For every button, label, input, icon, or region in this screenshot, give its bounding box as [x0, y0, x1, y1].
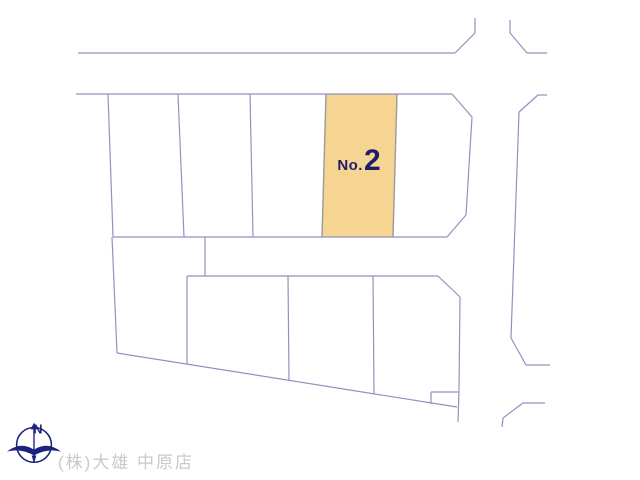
- boundary-line: [510, 33, 527, 53]
- parcel-label-number: 2: [364, 146, 381, 176]
- boundary-line: [438, 276, 460, 297]
- boundary-line: [459, 297, 460, 390]
- boundary-line: [455, 33, 475, 53]
- boundary-line: [466, 117, 472, 215]
- boundary-line: [108, 94, 113, 237]
- boundary-line: [519, 95, 538, 112]
- boundary-line: [511, 338, 526, 365]
- parcel-label-prefix: No.: [337, 157, 363, 174]
- boundary-line: [250, 94, 253, 237]
- boundary-line: [288, 276, 289, 380]
- boundary-line: [458, 390, 459, 422]
- parcel-map-drawing: [0, 0, 640, 480]
- compass-north-icon: N: [5, 412, 63, 470]
- boundary-line: [511, 112, 519, 338]
- plot-map-image: No. 2 N (株)大雄 中原店: [0, 0, 640, 480]
- boundary-line: [503, 403, 523, 418]
- boundary-line: [447, 215, 466, 237]
- boundary-line: [117, 353, 457, 407]
- parcel-number-label: No. 2: [322, 146, 396, 190]
- boundary-line: [373, 276, 374, 394]
- boundary-line: [178, 94, 184, 237]
- boundary-line: [502, 418, 503, 427]
- parcel-boundary-lines: [76, 18, 550, 427]
- company-name-label: (株)大雄 中原店: [58, 448, 358, 473]
- boundary-line: [112, 237, 117, 353]
- boundary-line: [452, 94, 472, 117]
